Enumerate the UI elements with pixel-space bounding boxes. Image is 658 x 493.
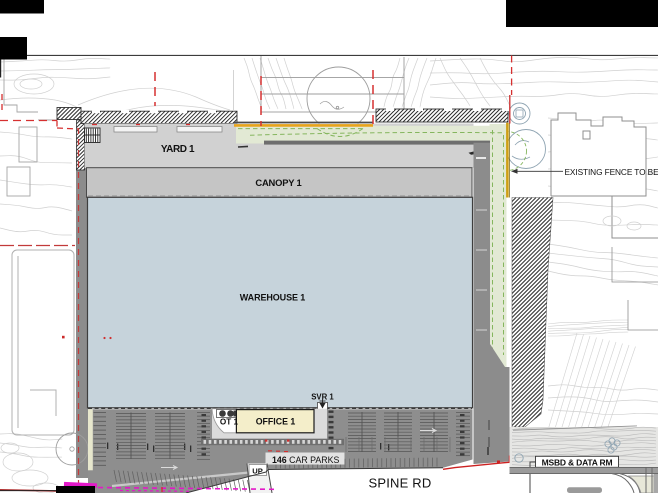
svg-text:OFFICE 1: OFFICE 1: [256, 416, 296, 426]
svg-text:CANOPY 1: CANOPY 1: [255, 177, 301, 188]
svg-text:YARD 1: YARD 1: [161, 144, 195, 155]
svg-text:SPINE RD: SPINE RD: [368, 476, 431, 491]
svg-text:OT 1: OT 1: [220, 418, 239, 427]
svg-text:SVR 1: SVR 1: [311, 393, 334, 402]
svg-text:WAREHOUSE 1: WAREHOUSE 1: [240, 293, 306, 303]
svg-text:146 CAR PARKS: 146 CAR PARKS: [272, 455, 339, 465]
svg-text:MSBD & DATA RM: MSBD & DATA RM: [542, 457, 613, 467]
svg-text:EXISTING FENCE TO BE R: EXISTING FENCE TO BE R: [565, 167, 658, 177]
